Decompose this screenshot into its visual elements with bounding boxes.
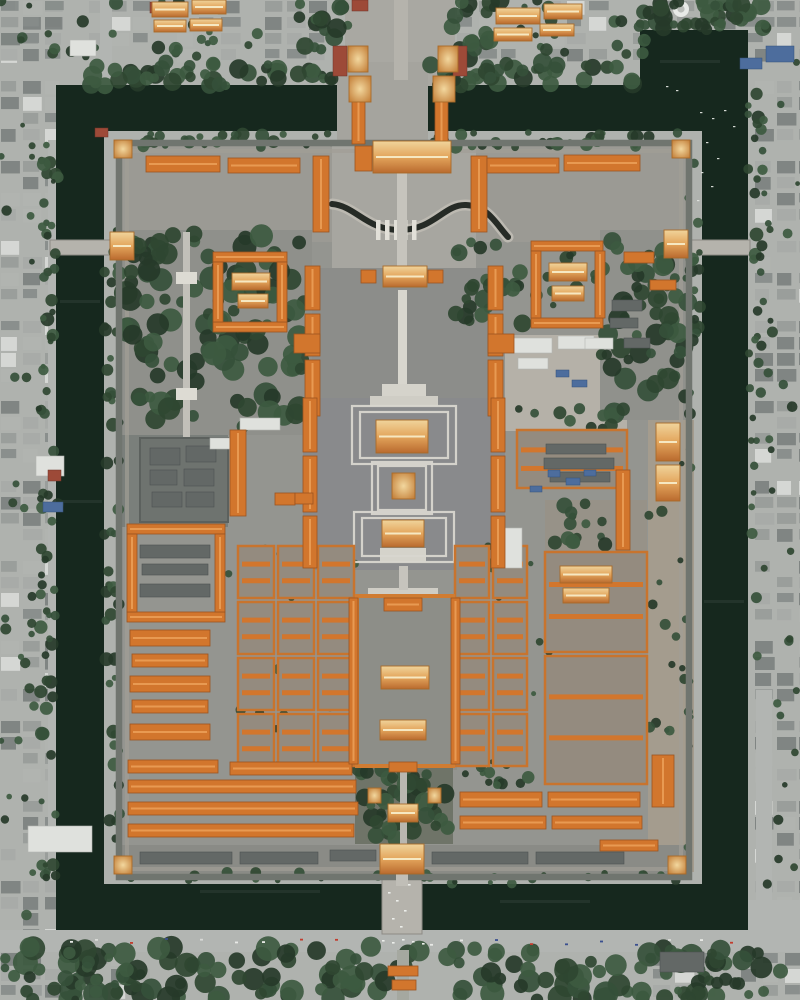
satellite-image — [0, 0, 800, 1000]
satellite-view-forbidden-city — [0, 0, 800, 1000]
